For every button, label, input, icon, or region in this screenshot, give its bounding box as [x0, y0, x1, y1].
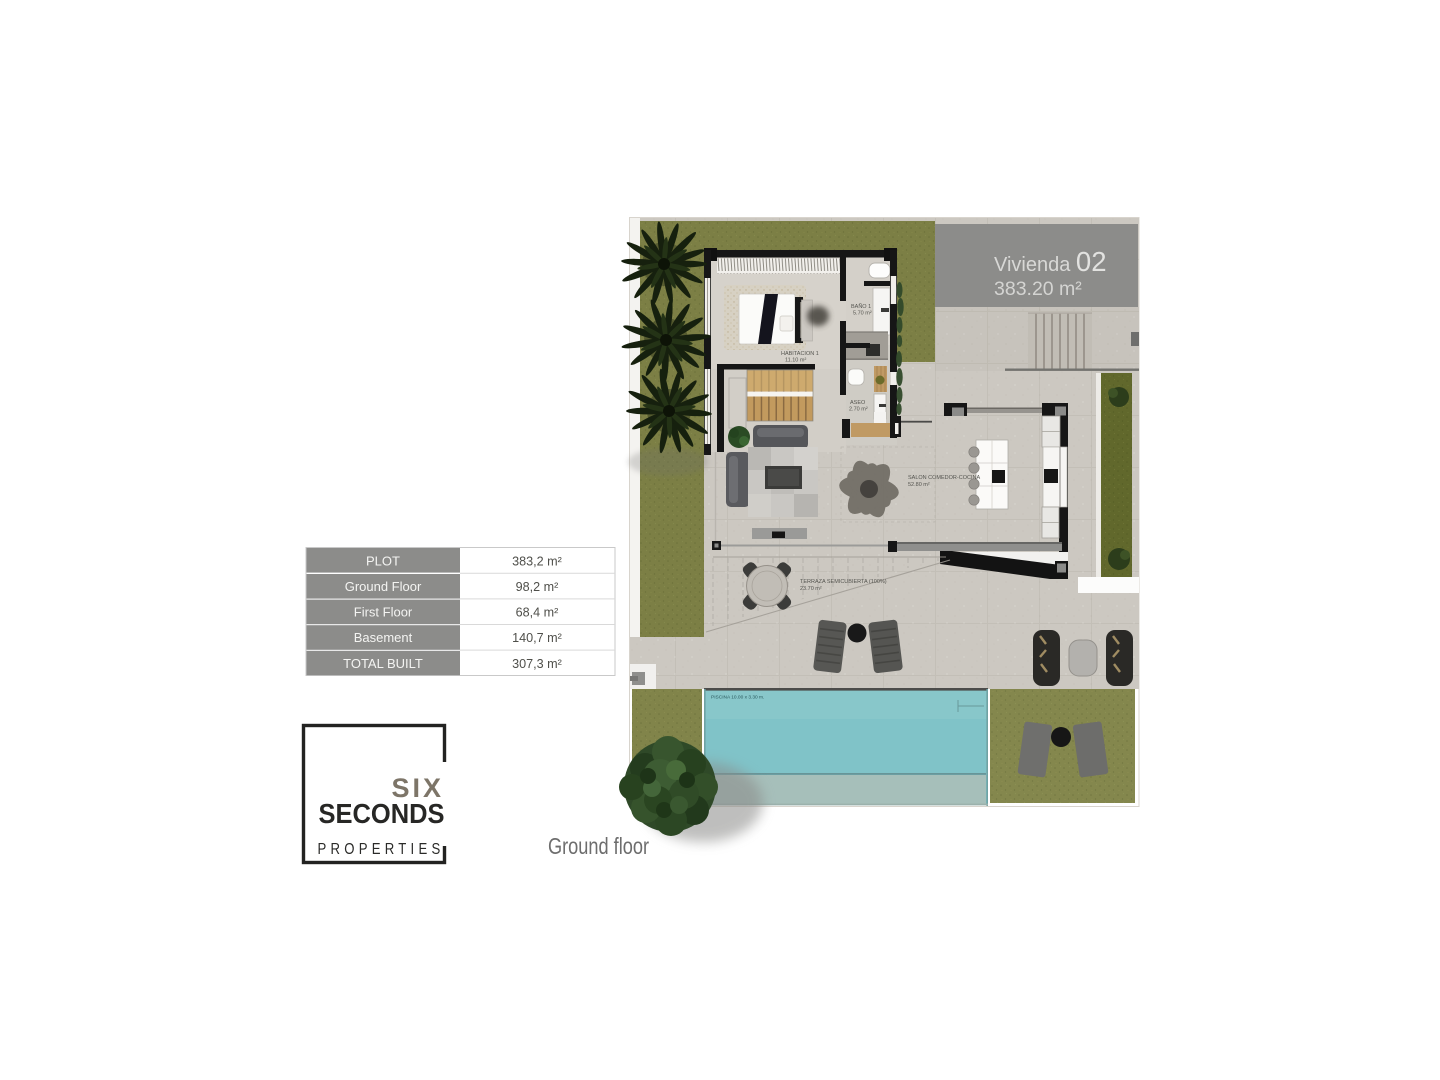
- svg-text:Ground Floor: Ground Floor: [345, 579, 422, 594]
- svg-text:2.70 m²: 2.70 m²: [849, 407, 868, 413]
- svg-text:383,2 m²: 383,2 m²: [512, 555, 562, 569]
- svg-text:TERRAZA SEMICUBIERTA (100%): TERRAZA SEMICUBIERTA (100%): [800, 579, 887, 585]
- svg-text:Basement: Basement: [354, 630, 413, 645]
- svg-text:PLOT: PLOT: [366, 554, 400, 569]
- svg-text:First Floor: First Floor: [354, 605, 413, 620]
- svg-text:23.70 m²: 23.70 m²: [800, 586, 822, 592]
- svg-text:BAÑO 1: BAÑO 1: [851, 303, 871, 310]
- svg-text:307,3 m²: 307,3 m²: [512, 657, 562, 671]
- svg-text:SALON COMEDOR-COCINA: SALON COMEDOR-COCINA: [908, 475, 980, 481]
- svg-text:PROPERTIES: PROPERTIES: [318, 841, 445, 858]
- svg-text:Ground floor: Ground floor: [548, 833, 649, 859]
- svg-text:ASEO: ASEO: [850, 400, 866, 406]
- svg-text:11.10 m²: 11.10 m²: [785, 358, 806, 364]
- svg-text:383.20 m²: 383.20 m²: [994, 278, 1082, 300]
- svg-text:98,2 m²: 98,2 m²: [516, 580, 559, 594]
- svg-text:PISCINA 10.00 x 3.30 m.: PISCINA 10.00 x 3.30 m.: [711, 695, 764, 701]
- svg-text:HABITACION 1: HABITACION 1: [781, 351, 819, 357]
- svg-text:52.80 m²: 52.80 m²: [908, 482, 930, 488]
- svg-text:TOTAL BUILT: TOTAL BUILT: [343, 656, 423, 671]
- svg-text:68,4 m²: 68,4 m²: [516, 606, 559, 620]
- svg-text:5.70 m²: 5.70 m²: [853, 311, 872, 317]
- svg-text:140,7 m²: 140,7 m²: [512, 631, 562, 645]
- svg-text:SECONDS: SECONDS: [319, 798, 445, 829]
